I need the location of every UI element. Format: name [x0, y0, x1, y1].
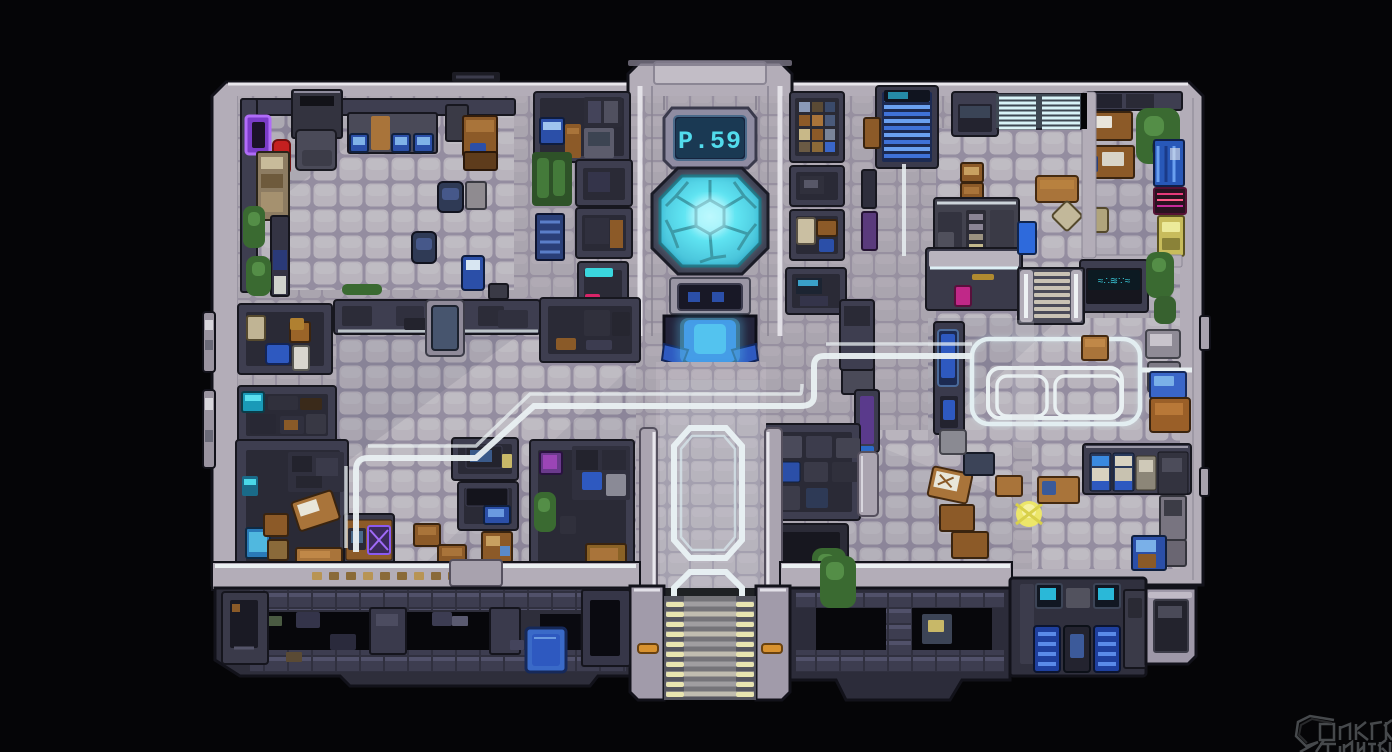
- svg-text:≈∴≋∵≈: ≈∴≋∵≈: [1097, 277, 1130, 288]
